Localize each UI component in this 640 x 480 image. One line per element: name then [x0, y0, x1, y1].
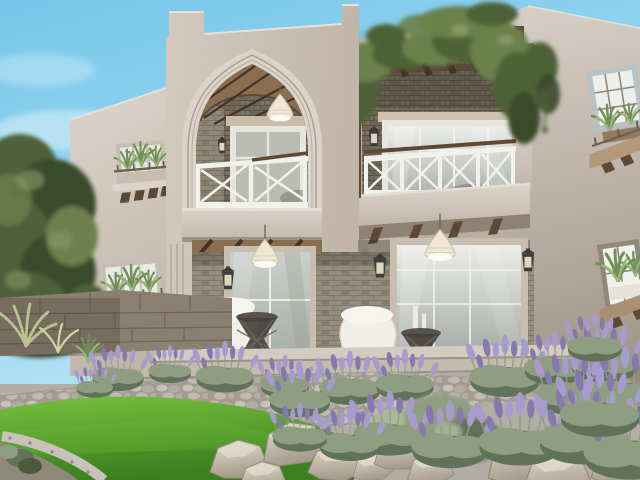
- texture-grain: [0, 0, 640, 480]
- villa-render: [0, 0, 640, 480]
